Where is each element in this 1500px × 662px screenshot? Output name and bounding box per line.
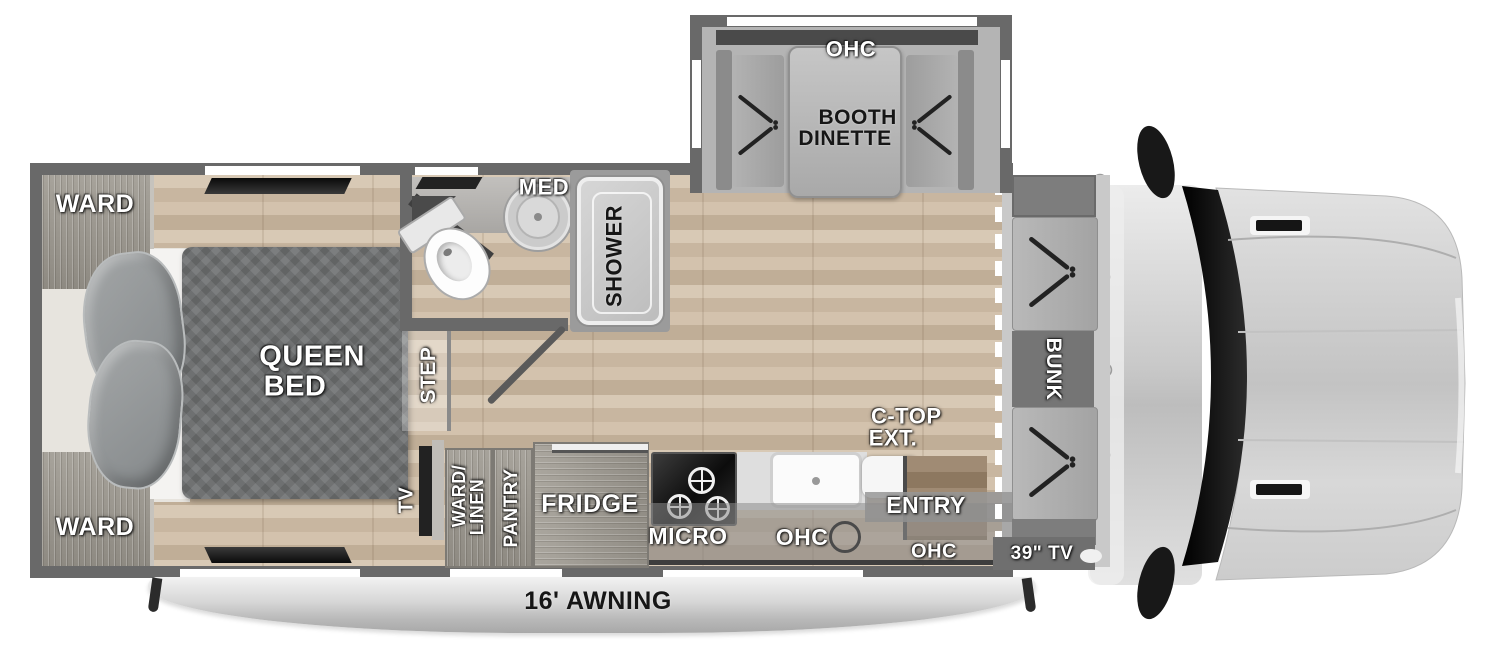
label-bunk: BUNK [1042,338,1064,401]
label-ward-top: WARD [56,192,134,218]
window-bedroom-bottom [180,569,360,577]
bathroom-wall-bottom [400,318,568,331]
label-shower: SHOWER [604,205,627,307]
hood-vent-bottom-icon [1250,480,1310,499]
vanity-shelf [416,177,483,189]
step-edge [447,331,451,431]
window-dinette-right [1001,60,1010,148]
dinette-bench-left-back [716,50,732,190]
label-micro: MICRO [648,525,727,549]
label-ward-linen: WARD/LINEN [431,465,505,550]
window-bedroom-top [205,166,360,175]
label-dinette-ohc: OHC [826,39,876,62]
window-dinette-left [692,60,701,148]
window-kitchen-bottom-left [450,569,562,577]
bathroom-faucet-icon [534,213,542,221]
slide-divider-dashed-line [995,180,1002,565]
label-awning: 16' AWNING [524,589,672,615]
hood-front-highlight [1458,298,1462,473]
fridge-vent [552,444,648,453]
label-booth-dinette: BOOTHDINETTE [793,85,897,172]
bedroom-window-vent-bottom [204,547,351,563]
window-bathroom-top [415,167,478,175]
round-sink-icon [829,521,861,553]
label-fridge: FRIDGE [541,492,638,518]
window-dinette-top [727,17,977,26]
kitchen-faucet-icon [812,477,820,485]
seatbelt-straps-top-icon [1024,228,1080,316]
cab-locker-top [1012,175,1096,217]
label-ctop-ext: C-TOPEXT. [845,383,942,474]
door-handle-icon [1080,549,1102,563]
hood-vent-top-icon [1250,216,1310,235]
label-entry: ENTRY [886,494,966,518]
rv-floorplan: OHC BOOTHDINETTE WARD WARD QUEENBED MED … [0,0,1500,662]
cab-front [1088,88,1500,628]
label-tv: TV [397,487,418,514]
dinette-bench-right-back [958,50,974,190]
label-ohc-entry: OHC [911,542,957,563]
seatbelt-straps-bottom-icon [1024,418,1080,506]
dinette-straps-right-icon [908,85,956,165]
label-ward-bottom: WARD [56,515,134,541]
label-queen-bed: QUEENBED [225,312,365,431]
label-ohc-kitchen: OHC [776,526,829,550]
label-39-tv: 39" TV [1011,544,1074,564]
label-step: STEP [418,347,440,404]
label-med: MED [519,177,569,200]
dinette-straps-left-icon [734,85,782,165]
bedroom-window-vent-top [204,178,351,194]
hood [1216,188,1465,580]
label-pantry: PANTRY [502,469,522,548]
